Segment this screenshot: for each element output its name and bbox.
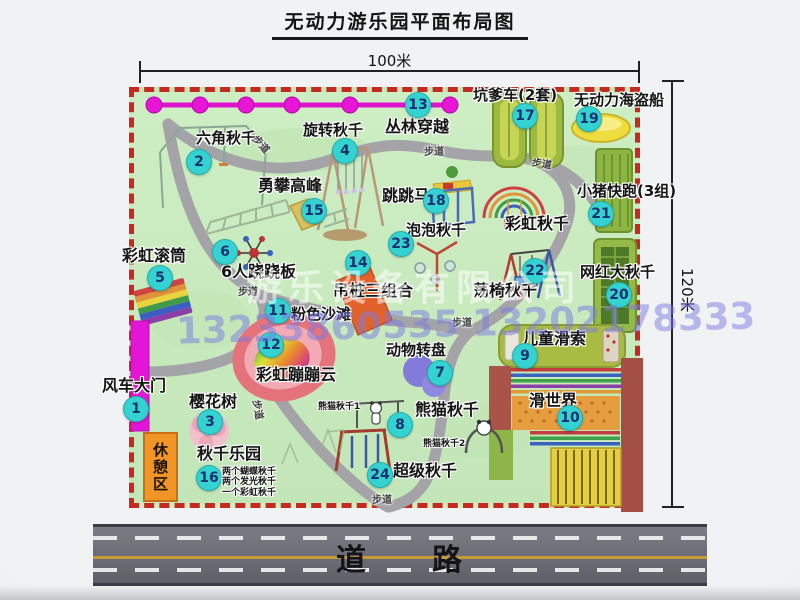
width-dimension-line: [139, 70, 640, 72]
road-label: 道 路: [93, 535, 707, 579]
screenshot-stage: 无动力游乐园平面布局图 100米 120米: [0, 0, 800, 600]
width-dimension-label: 100米: [139, 50, 640, 71]
page-title: 无动力游乐园平面布局图: [0, 7, 800, 40]
page-title-text: 无动力游乐园平面布局图: [272, 7, 527, 40]
below-road-strip: [0, 586, 800, 600]
rest-area: 休憩区: [143, 432, 178, 502]
height-dimension-line: [671, 80, 673, 508]
